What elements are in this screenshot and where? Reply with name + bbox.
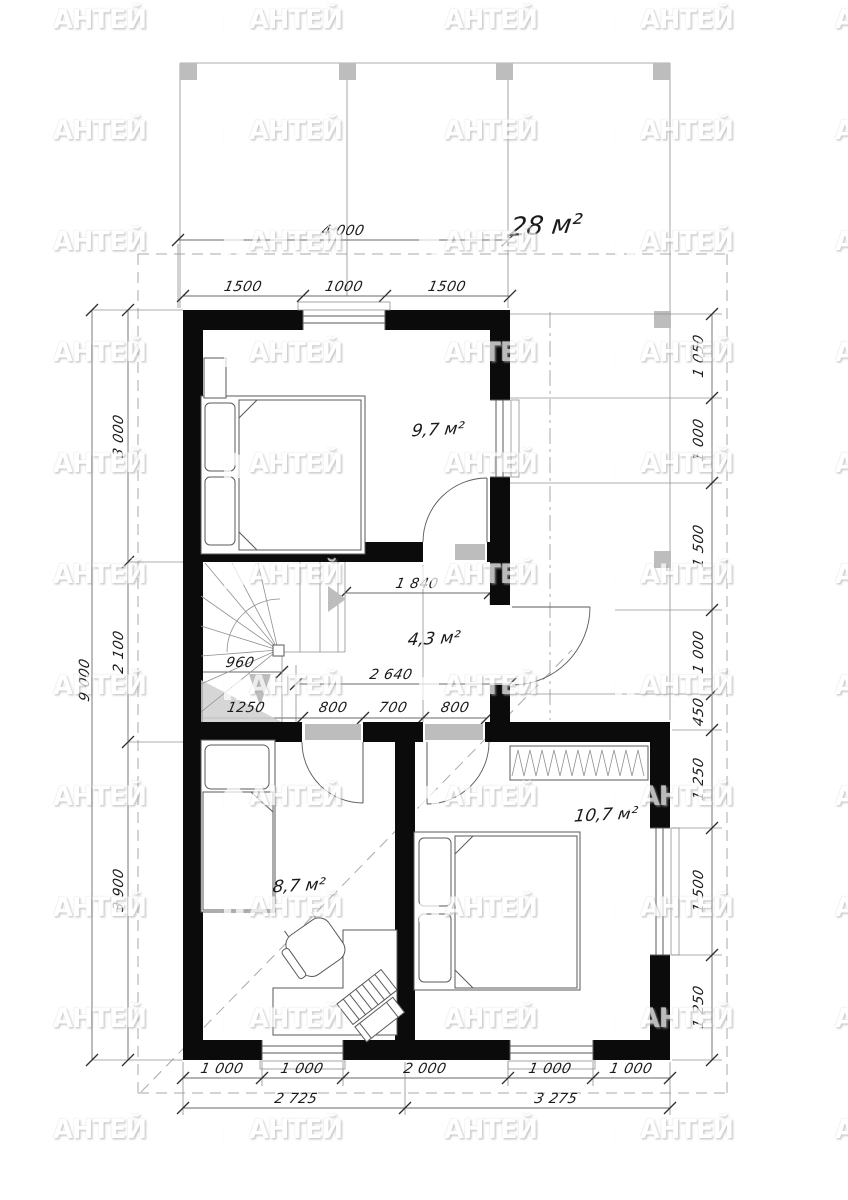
dim-right-upper-2: 1 500: [691, 523, 707, 569]
dim-right-upper-0: 1 050: [691, 333, 707, 379]
dim-bottom-overall-0: 2 725: [273, 1091, 319, 1107]
dim-hall-upper: 1 840: [394, 576, 440, 592]
bed-double-right: [414, 832, 580, 990]
bed-single: [201, 740, 275, 912]
total-area-label: 28 м²: [508, 209, 584, 243]
stair-direction-arrow-right: [328, 586, 346, 612]
dim-top-chain-0: 1500: [222, 279, 263, 295]
dim-right-lower-1: 1 500: [691, 868, 707, 914]
window-top: [298, 302, 390, 330]
dim-bottom-chain-1: 1 000: [279, 1061, 325, 1077]
floor-plan-page: 28 м² 4 000 1500 1000 1500 9 000 3 000 2…: [0, 0, 848, 1200]
dim-top-chain-1: 1000: [323, 279, 364, 295]
dim-left-chain-1: 2 100: [111, 629, 127, 675]
dim-hall-bottom-3: 800: [439, 700, 471, 716]
room-area-bedroom-right: 10,7 м²: [573, 803, 639, 826]
nightstand: [204, 358, 226, 398]
door-bedroom-right: [427, 742, 489, 804]
window-right-upper: [490, 400, 519, 477]
dim-bottom-chain-4: 1 000: [608, 1061, 654, 1077]
dim-right-lower-2: 1 250: [691, 984, 707, 1030]
door-bedroom-left: [302, 742, 363, 803]
dim-bottom-chain-0: 1 000: [199, 1061, 245, 1077]
door-bedroom-top: [423, 478, 487, 542]
room-area-hall: 4,3 м²: [407, 628, 462, 651]
dim-right-upper-1: 1 000: [691, 417, 707, 463]
window-right-lower: [650, 828, 679, 955]
dim-top-overall: 4 000: [320, 223, 366, 239]
dim-hall-bottom-2: 700: [377, 700, 409, 716]
room-area-bedroom-top: 9,7 м²: [411, 419, 466, 442]
dim-bottom-chain-2: 2 000: [402, 1061, 448, 1077]
dim-hall-full: 2 640: [368, 667, 414, 683]
dim-right-upper-4: 450: [691, 696, 707, 728]
wardrobe: [510, 746, 648, 780]
dim-right-upper-3: 1 000: [691, 629, 707, 675]
bed-double-top: [201, 396, 365, 554]
dim-top-chain-2: 1500: [426, 279, 467, 295]
dim-bottom-chain-3: 1 000: [527, 1061, 573, 1077]
dim-left-overall: 9 000: [77, 657, 93, 703]
dim-right-lower-0: 1 250: [691, 756, 707, 802]
staircase: [201, 562, 346, 722]
dim-left-chain-0: 3 000: [111, 413, 127, 459]
dim-stair-width: 960: [224, 655, 256, 671]
floor-plan-drawing: [0, 0, 848, 1200]
room-area-bedroom-left: 8,7 м²: [272, 875, 327, 898]
door-entrance: [512, 607, 590, 685]
dim-bottom-overall-1: 3 275: [533, 1091, 579, 1107]
dim-left-chain-2: 3 900: [111, 867, 127, 913]
dim-hall-bottom-1: 800: [317, 700, 349, 716]
dim-hall-bottom-0: 1250: [225, 700, 266, 716]
